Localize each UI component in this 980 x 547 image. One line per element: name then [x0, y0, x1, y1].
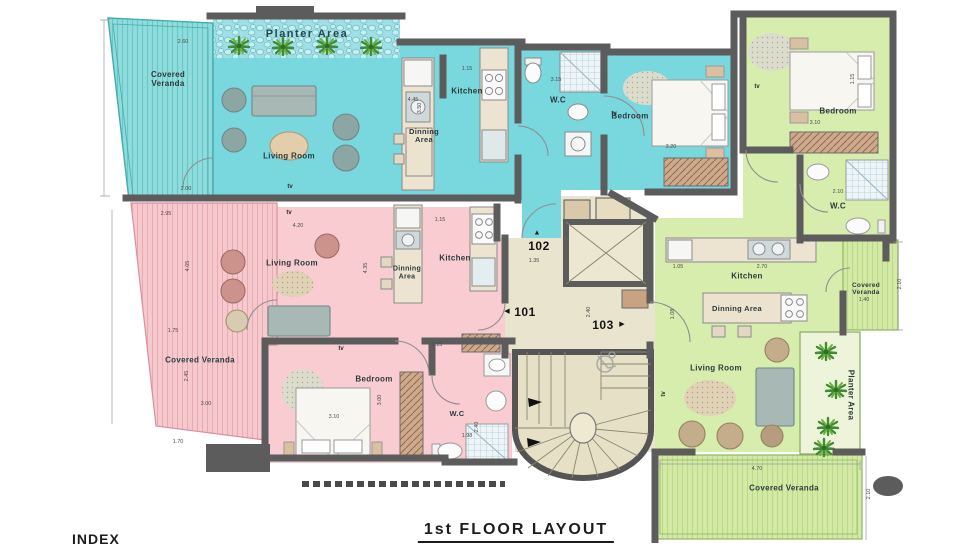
- wardrobe: [790, 132, 878, 153]
- blue-dining-label: Dinning Area: [403, 128, 445, 145]
- elevator-shaft: [566, 222, 646, 284]
- dimension-label: 3.00: [201, 401, 212, 407]
- fridge: [396, 208, 420, 228]
- sink: [486, 391, 506, 411]
- dimension-label: 2.95: [161, 211, 172, 217]
- pillow: [858, 56, 871, 79]
- door-mat: [622, 290, 648, 308]
- core-cabinet: [564, 200, 590, 220]
- pink-bedroom-label: Bedroom: [355, 376, 392, 385]
- washer: [565, 132, 591, 156]
- rug: [272, 271, 314, 297]
- sink: [568, 104, 588, 120]
- dimension-label: 1.15: [435, 217, 446, 223]
- nightstand: [706, 66, 724, 77]
- green-living-label: Living Room: [690, 365, 742, 374]
- plan-title: 1st FLOOR LAYOUT: [418, 521, 614, 543]
- fridge: [404, 60, 432, 86]
- pink-dining-label: Dinning Area: [387, 265, 427, 280]
- dimension-label: 2.10: [897, 279, 903, 290]
- pillow: [712, 84, 725, 110]
- blue-planter-label: Planter Area: [266, 28, 348, 40]
- stove: [781, 295, 807, 321]
- armchair: [222, 88, 246, 112]
- wardrobe: [400, 372, 423, 456]
- dimension-label: 1.15: [432, 342, 443, 348]
- stove: [482, 70, 506, 100]
- index-heading: INDEX: [72, 531, 120, 547]
- dimension-label: 4.05: [185, 261, 191, 272]
- dimension-label: 1.08: [670, 309, 676, 320]
- dimension-label: 4.20: [293, 223, 304, 229]
- armchair: [333, 114, 359, 140]
- unit-103-number: 103: [592, 318, 614, 332]
- dimension-label: 2.70: [757, 264, 768, 270]
- armchair: [679, 421, 705, 447]
- dimension-label: 3.00: [377, 395, 383, 406]
- dimension-label: 4.35: [363, 263, 369, 274]
- green-dining-label: Dinning Area: [712, 305, 762, 313]
- stove: [472, 214, 495, 244]
- armchair: [717, 423, 743, 449]
- spiral-staircase: [515, 352, 651, 478]
- unit-102-number: 102: [528, 239, 550, 253]
- unit-103-arrow-icon: ▶: [619, 320, 624, 328]
- tv-marker: tv: [754, 84, 759, 90]
- nightstand: [372, 442, 382, 456]
- blue-covered-veranda: [108, 18, 213, 200]
- floor-plan-page: { "title": "1st FLOOR LAYOUT", "index_la…: [0, 0, 980, 543]
- green-veranda-side-label: Covered Veranda: [840, 282, 892, 296]
- dimension-label: 2.10: [866, 489, 872, 500]
- side-table: [226, 310, 248, 332]
- sofa: [756, 368, 794, 426]
- green-bedroom-label: Bedroom: [819, 108, 856, 117]
- dimension-label: 3.10: [329, 414, 340, 420]
- dimension-label: 3.50: [417, 103, 423, 114]
- unit-101-arrow-icon: ◀: [504, 307, 509, 315]
- blue-living-label: Living Room: [263, 153, 315, 162]
- nightstand: [790, 38, 808, 49]
- wardrobe: [664, 158, 728, 186]
- pillow: [858, 84, 871, 107]
- pillow: [334, 440, 362, 453]
- blue-kitchen-label: Kitchen: [451, 88, 482, 97]
- pink-living-label: Living Room: [266, 260, 318, 269]
- nightstand: [790, 112, 808, 123]
- armchair: [333, 145, 359, 171]
- dimension-label: 2.10: [833, 189, 844, 195]
- green-planter-label: Planter Area: [846, 370, 855, 420]
- dimension-label: 2.40: [586, 307, 592, 318]
- sofa: [268, 306, 330, 336]
- green-wc-label: W.C: [830, 203, 846, 212]
- pink-veranda-label: Covered Veranda: [165, 357, 235, 366]
- dimension-label: 3.10: [810, 120, 821, 126]
- green-veranda-bottom-label: Covered Veranda: [749, 485, 819, 494]
- pillow: [302, 440, 330, 453]
- pink-wc-label: W.C: [449, 410, 464, 418]
- rug: [748, 33, 796, 71]
- blue-veranda-label: Covered Veranda: [136, 71, 200, 89]
- sofa: [252, 86, 316, 116]
- nightstand: [284, 442, 294, 456]
- rug: [684, 380, 736, 416]
- blue-wc-label: W.C: [550, 97, 566, 106]
- dimension-label: 1.15: [462, 66, 473, 72]
- side-table: [761, 425, 783, 447]
- unit-101-number: 101: [514, 305, 536, 319]
- dimension-label: 4.70: [752, 466, 763, 472]
- dimension-label: 3.15: [551, 77, 562, 83]
- column-marker: [873, 476, 903, 496]
- tv-marker: tv: [661, 391, 667, 396]
- tv-marker: tv: [338, 346, 343, 352]
- dimension-label: 2.00: [181, 186, 192, 192]
- dimension-label: 1.70: [173, 439, 184, 445]
- dimension-label: 2.45: [184, 371, 190, 382]
- dimension-label: 1.05: [673, 264, 684, 270]
- dimension-label: 2.40: [474, 422, 480, 433]
- dimension-label: 3.20: [666, 144, 677, 150]
- tv-marker: tv: [287, 184, 292, 190]
- dimension-label: 1.98: [462, 433, 473, 439]
- armchair: [221, 250, 245, 274]
- dimension-label: 1.75: [168, 328, 179, 334]
- dimension-label: 2.60: [178, 39, 189, 45]
- unit-102-arrow-icon: ▲: [534, 230, 541, 237]
- toilet: [846, 218, 870, 234]
- armchair: [315, 234, 339, 258]
- sink: [807, 164, 829, 180]
- blue-bedroom-label: Bedroom: [611, 113, 648, 122]
- armchair: [765, 338, 789, 362]
- pillow: [712, 114, 725, 140]
- dimension-label: 1.15: [850, 74, 856, 85]
- armchair: [221, 279, 245, 303]
- tv-marker: tv: [611, 111, 616, 117]
- pink-kitchen-label: Kitchen: [439, 255, 470, 264]
- green-kitchen-label: Kitchen: [731, 273, 762, 282]
- tv-marker: tv: [286, 210, 291, 216]
- dimension-label: 1.40: [859, 297, 870, 303]
- nightstand: [706, 148, 724, 159]
- armchair: [222, 128, 246, 152]
- dimension-label: 1.35: [529, 258, 540, 264]
- fridge: [668, 240, 692, 260]
